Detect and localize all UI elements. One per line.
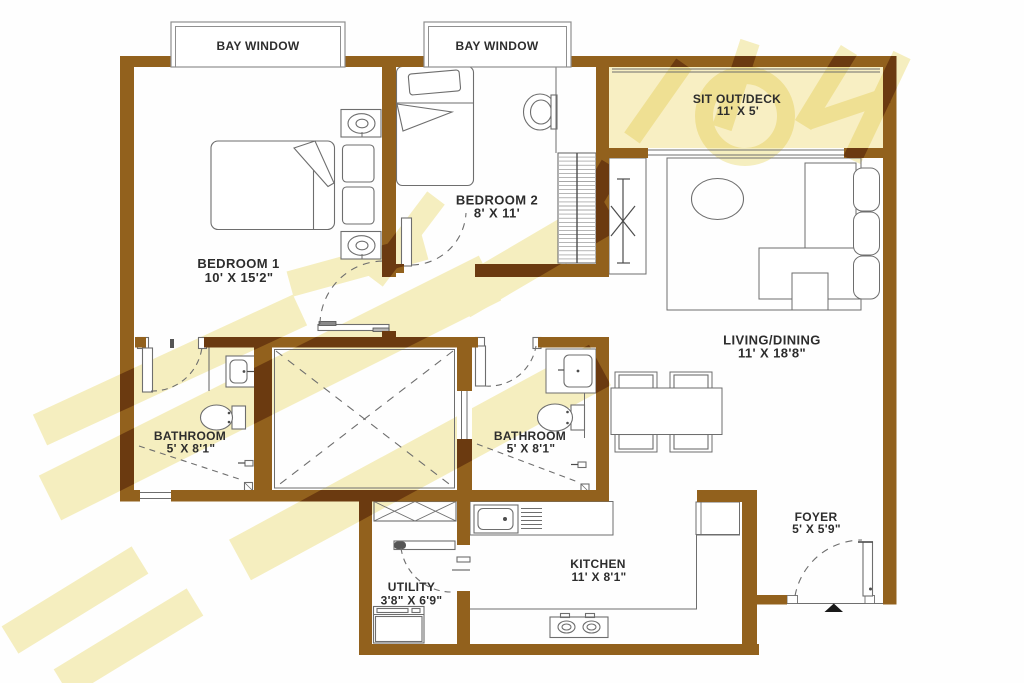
svg-text:5' X 5'9": 5' X 5'9" — [792, 522, 841, 536]
svg-text:5' X 8'1": 5' X 8'1" — [507, 442, 556, 456]
svg-text:UTILITY: UTILITY — [388, 580, 435, 594]
svg-text:11' X 18'8": 11' X 18'8" — [738, 346, 806, 361]
svg-text:11' X 8'1": 11' X 8'1" — [571, 570, 626, 584]
svg-text:BEDROOM 1: BEDROOM 1 — [197, 256, 279, 271]
svg-text:10' X 15'2": 10' X 15'2" — [205, 270, 274, 285]
svg-text:8' X 11': 8' X 11' — [474, 206, 520, 221]
svg-text:3'8" X 6'9": 3'8" X 6'9" — [381, 594, 443, 608]
svg-text:KITCHEN: KITCHEN — [570, 557, 625, 571]
svg-text:11' X 5': 11' X 5' — [717, 104, 759, 118]
svg-text:5' X 8'1": 5' X 8'1" — [167, 442, 216, 456]
svg-text:BAY WINDOW: BAY WINDOW — [216, 39, 299, 53]
svg-text:BAY WINDOW: BAY WINDOW — [455, 39, 538, 53]
